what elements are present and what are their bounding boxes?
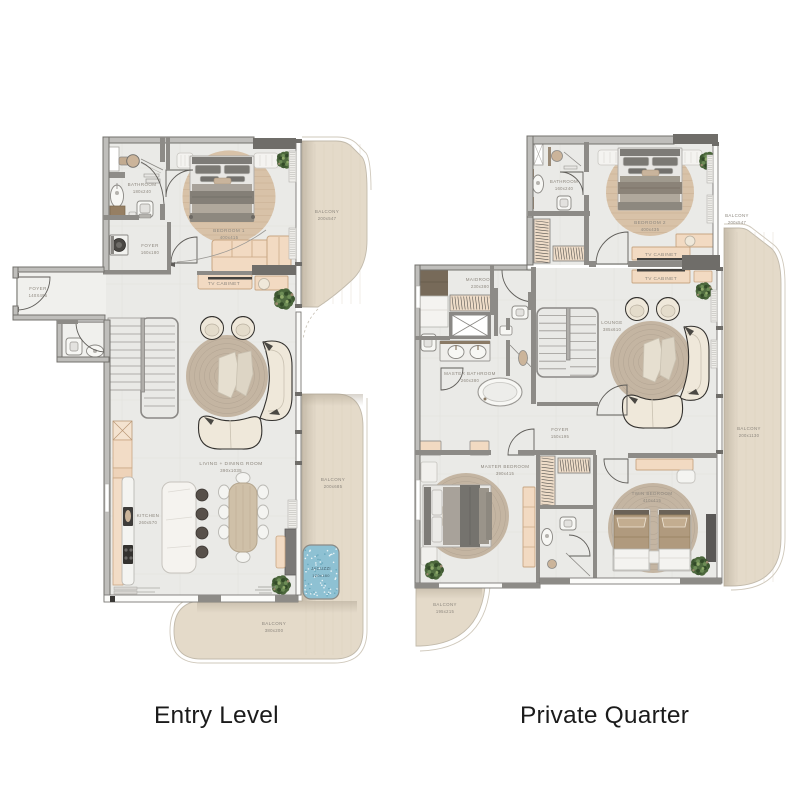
- svg-text:410x415: 410x415: [643, 498, 662, 503]
- svg-text:TWIN BEDROOM: TWIN BEDROOM: [632, 491, 673, 496]
- svg-text:260x570: 260x570: [139, 520, 158, 525]
- svg-text:385x610: 385x610: [603, 327, 622, 332]
- svg-text:BEDROOM 2: BEDROOM 2: [634, 220, 666, 225]
- svg-text:KITCHEN: KITCHEN: [137, 513, 160, 518]
- svg-text:BALCONY: BALCONY: [321, 477, 345, 482]
- svg-text:400x435: 400x435: [641, 227, 660, 232]
- svg-text:BATHROOM: BATHROOM: [550, 179, 578, 184]
- svg-text:390x415: 390x415: [496, 471, 515, 476]
- svg-text:MAIDROOM: MAIDROOM: [466, 277, 494, 282]
- svg-text:200x547: 200x547: [728, 220, 747, 225]
- svg-text:390x1035: 390x1035: [220, 468, 242, 473]
- svg-text:BATHROOM: BATHROOM: [128, 182, 157, 187]
- svg-text:TV CABINET: TV CABINET: [645, 276, 677, 282]
- svg-text:260x380: 260x380: [461, 378, 480, 383]
- svg-text:200x547: 200x547: [318, 216, 337, 221]
- svg-text:BALCONY: BALCONY: [315, 209, 339, 214]
- svg-text:400x415: 400x415: [220, 235, 239, 240]
- svg-text:200x1130: 200x1130: [739, 433, 760, 438]
- svg-text:FOYER: FOYER: [551, 427, 569, 432]
- svg-text:LOUNGE: LOUNGE: [601, 320, 622, 325]
- svg-text:160x240: 160x240: [555, 186, 574, 191]
- svg-text:180x240: 180x240: [133, 189, 152, 194]
- svg-text:230x380: 230x380: [471, 284, 490, 289]
- svg-text:BALCONY: BALCONY: [725, 213, 749, 218]
- svg-text:LIVING + DINING ROOM: LIVING + DINING ROOM: [199, 461, 262, 467]
- svg-text:FOYER: FOYER: [29, 286, 47, 291]
- svg-text:150x195: 150x195: [551, 434, 570, 439]
- svg-text:TV CABINET: TV CABINET: [208, 281, 240, 287]
- svg-text:MASTER BEDROOM: MASTER BEDROOM: [481, 464, 530, 469]
- svg-text:MASTER BATHROOM: MASTER BATHROOM: [444, 371, 496, 376]
- svg-text:JACUZZI: JACUZZI: [311, 566, 331, 571]
- svg-text:120x180: 120x180: [312, 573, 330, 578]
- svg-text:195x215: 195x215: [436, 609, 455, 614]
- svg-text:380x200: 380x200: [265, 628, 284, 633]
- svg-text:BALCONY: BALCONY: [737, 426, 761, 431]
- svg-text:TV CABINET: TV CABINET: [645, 252, 677, 258]
- svg-text:200x685: 200x685: [324, 484, 343, 489]
- svg-text:FOYER: FOYER: [141, 243, 159, 248]
- svg-text:160x180: 160x180: [141, 250, 160, 255]
- svg-text:BEDROOM 1: BEDROOM 1: [213, 228, 245, 233]
- svg-text:BALCONY: BALCONY: [262, 621, 286, 626]
- svg-text:BALCONY: BALCONY: [433, 602, 457, 607]
